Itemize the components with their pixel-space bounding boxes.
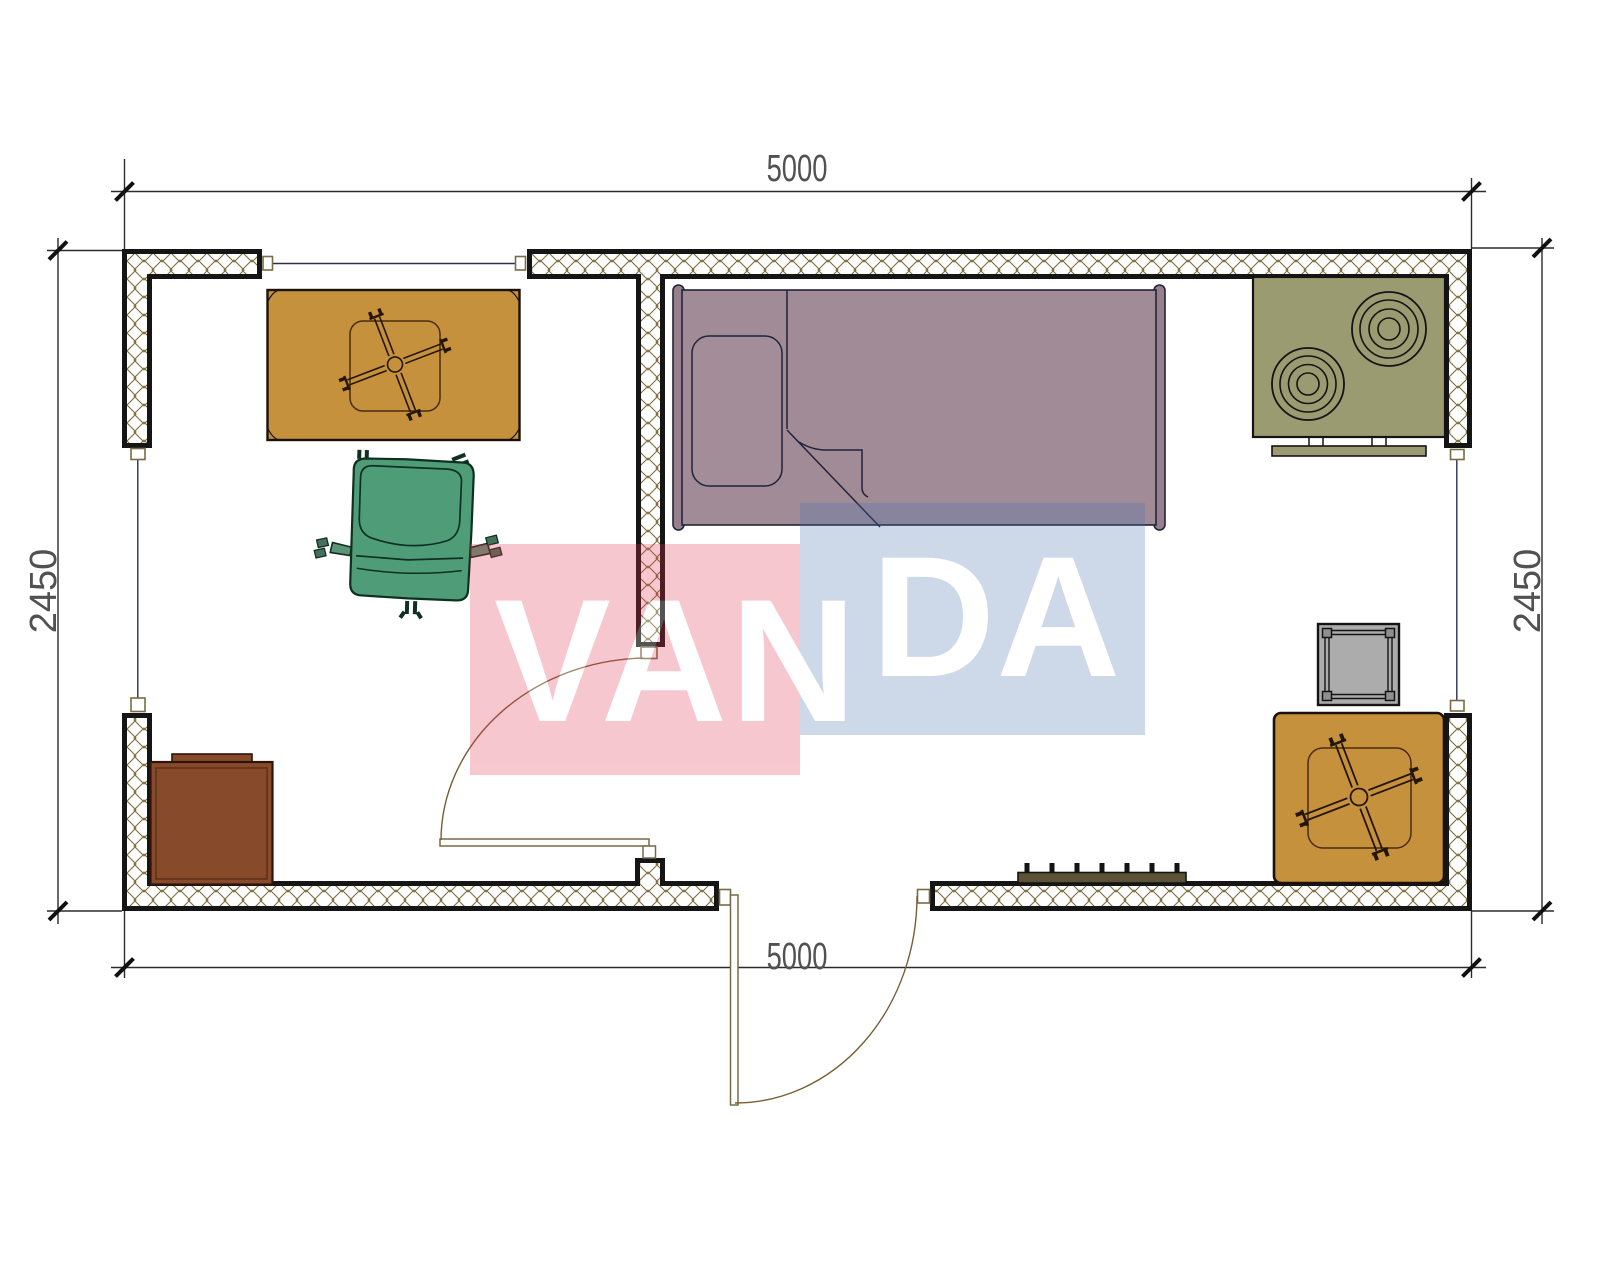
- svg-text:VAN: VAN: [494, 564, 860, 759]
- svg-text:5000: 5000: [767, 148, 828, 190]
- svg-text:2450: 2450: [1507, 549, 1549, 634]
- svg-text:5000: 5000: [767, 936, 828, 978]
- svg-text:DA: DA: [871, 521, 1121, 713]
- svg-text:2450: 2450: [23, 549, 65, 634]
